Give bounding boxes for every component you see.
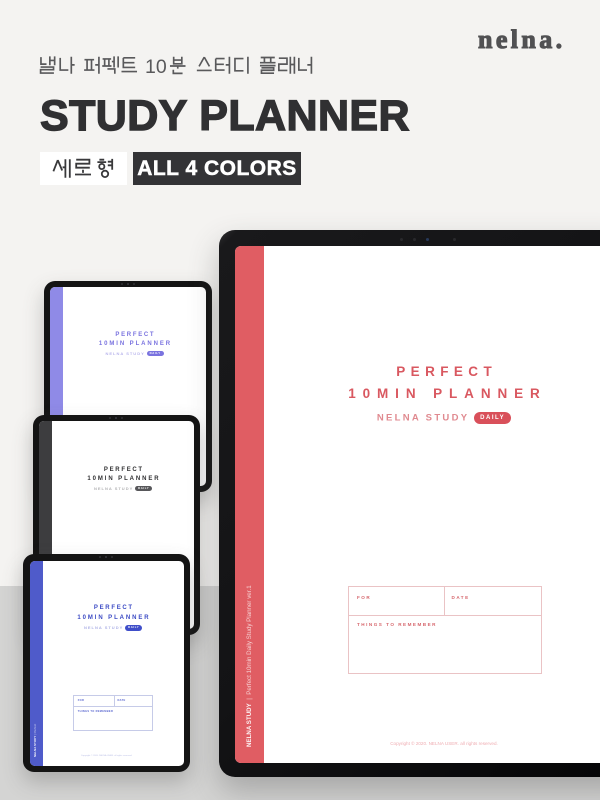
- svg-text:10: 10: [145, 56, 167, 77]
